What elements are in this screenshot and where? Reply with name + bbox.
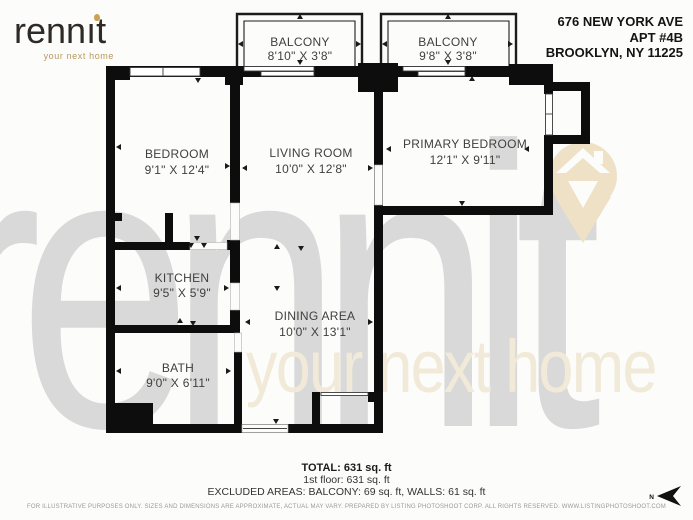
room-label-kitchen: KITCHEN (155, 271, 210, 285)
room-dims-bedroom: 9'1" X 12'4" (145, 163, 210, 177)
room-label-bath: BATH (162, 361, 194, 375)
room-label-balcony-2: BALCONY (418, 35, 477, 49)
floor-area: 1st floor: 631 sq. ft (0, 474, 693, 486)
area-summary: TOTAL: 631 sq. ft 1st floor: 631 sq. ft … (0, 462, 693, 498)
room-dims-living-room: 10'0" X 12'8" (275, 162, 347, 176)
room-label-bedroom: BEDROOM (145, 147, 209, 161)
room-dims-primary-bedroom: 12'1" X 9'11" (430, 153, 501, 167)
total-area: TOTAL: 631 sq. ft (0, 462, 693, 474)
room-dims-bath: 9'0" X 6'11" (146, 376, 210, 390)
room-label-balcony-1: BALCONY (270, 35, 329, 49)
room-dims-balcony-1: 8'10" X 3'8" (268, 49, 333, 63)
room-label-living-room: LIVING ROOM (269, 146, 352, 160)
disclaimer-text: FOR ILLUSTRATIVE PURPOSES ONLY. SIZES AN… (0, 504, 693, 510)
floor-plan-page: rennit your next home rennıt your next h… (0, 0, 693, 520)
room-label-dining-area: DINING AREA (275, 309, 356, 323)
floor-plan-drawing: BALCONY 8'10" X 3'8" BALCONY 9'8" X 3'8"… (0, 0, 693, 520)
room-dims-balcony-2: 9'8" X 3'8" (419, 49, 477, 63)
door-openings (190, 165, 383, 433)
excluded-areas: EXCLUDED AREAS: BALCONY: 69 sq. ft, WALL… (0, 486, 693, 498)
room-label-primary-bedroom: PRIMARY BEDROOM (403, 137, 527, 151)
watermark-pin-icon (549, 142, 617, 243)
room-dims-kitchen: 9'5" X 5'9" (153, 286, 211, 300)
room-dims-dining-area: 10'0" X 13'1" (279, 325, 351, 339)
